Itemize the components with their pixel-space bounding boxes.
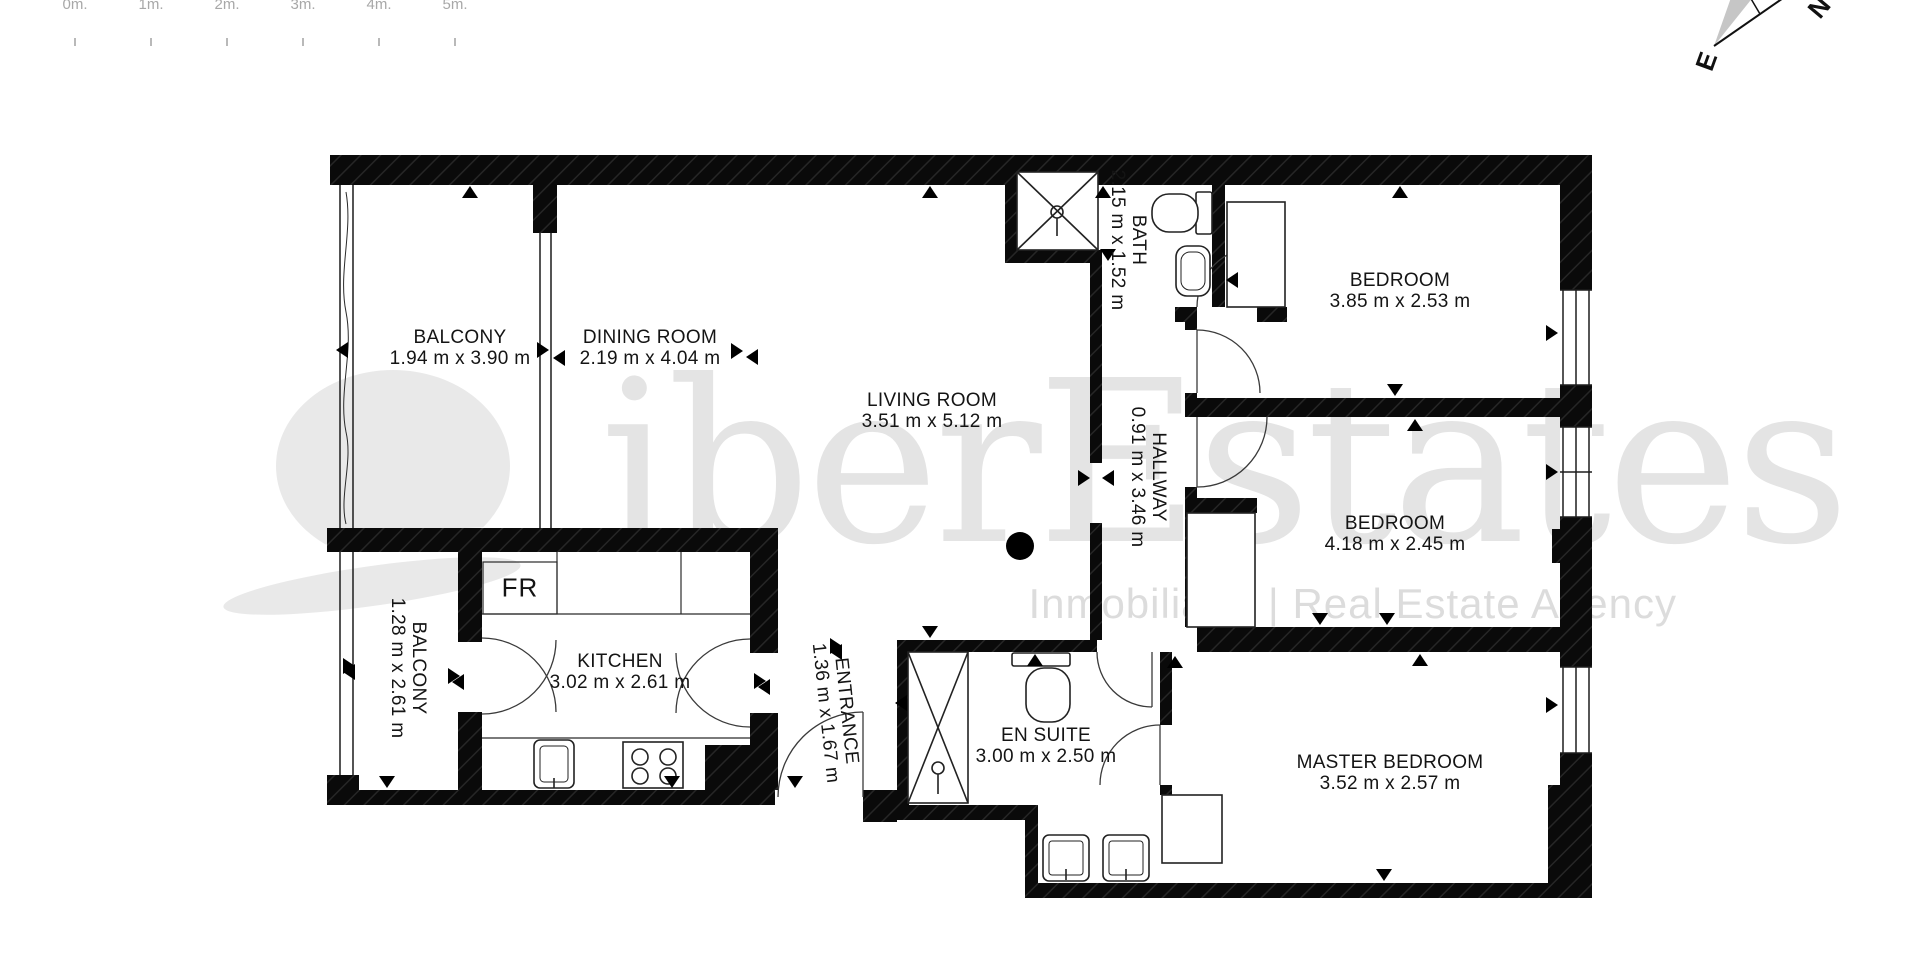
kitchen-sink-icon xyxy=(534,740,574,788)
room-label-bedroom-top: BEDROOM 3.85 m x 2.53 m xyxy=(1330,270,1471,312)
room-label-hallway: HALLWAY 0.91 m x 3.46 m xyxy=(1127,407,1169,548)
scale-label-0m: 0m. xyxy=(62,0,87,13)
shower-icon xyxy=(908,652,968,803)
balcony-glazing xyxy=(340,185,551,775)
toilet-icon xyxy=(1152,192,1212,234)
sink-icon xyxy=(1176,246,1210,296)
floorplan-drawing xyxy=(0,0,1920,980)
sink-icon xyxy=(1043,835,1149,881)
scale-label-1m: 1m. xyxy=(138,0,163,13)
scale-tick xyxy=(226,38,228,46)
scale-tick xyxy=(74,38,76,46)
column-dot xyxy=(1006,532,1034,560)
room-label-balcony-bottom: BALCONY 1.28 m x 2.61 m xyxy=(387,598,429,739)
scale-label-4m: 4m. xyxy=(366,0,391,13)
shower-icon xyxy=(1017,172,1098,250)
scale-label-5m: 5m. xyxy=(442,0,467,13)
room-label-ensuite: EN SUITE 3.00 m x 2.50 m xyxy=(976,725,1117,767)
scale-label-2m: 2m. xyxy=(214,0,239,13)
room-label-master-bedroom: MASTER BEDROOM 3.52 m x 2.57 m xyxy=(1297,752,1484,794)
room-label-bedroom-mid: BEDROOM 4.18 m x 2.45 m xyxy=(1325,513,1466,555)
scale-tick xyxy=(454,38,456,46)
fridge-label: FR xyxy=(502,573,539,604)
room-label-living: LIVING ROOM 3.51 m x 5.12 m xyxy=(862,390,1003,432)
scale-tick xyxy=(302,38,304,46)
room-label-kitchen: KITCHEN 3.02 m x 2.61 m xyxy=(550,651,691,693)
room-label-bath: BATH 2.15 m x 1.52 m xyxy=(1107,170,1149,311)
floorplan-page: iberEstates Inmobiliaria | Real Estate A… xyxy=(0,0,1920,980)
scale-tick xyxy=(150,38,152,46)
room-label-balcony-top: BALCONY 1.94 m x 3.90 m xyxy=(390,327,531,369)
scale-tick xyxy=(378,38,380,46)
room-label-dining: DINING ROOM 2.19 m x 4.04 m xyxy=(580,327,721,369)
scale-label-3m: 3m. xyxy=(290,0,315,13)
